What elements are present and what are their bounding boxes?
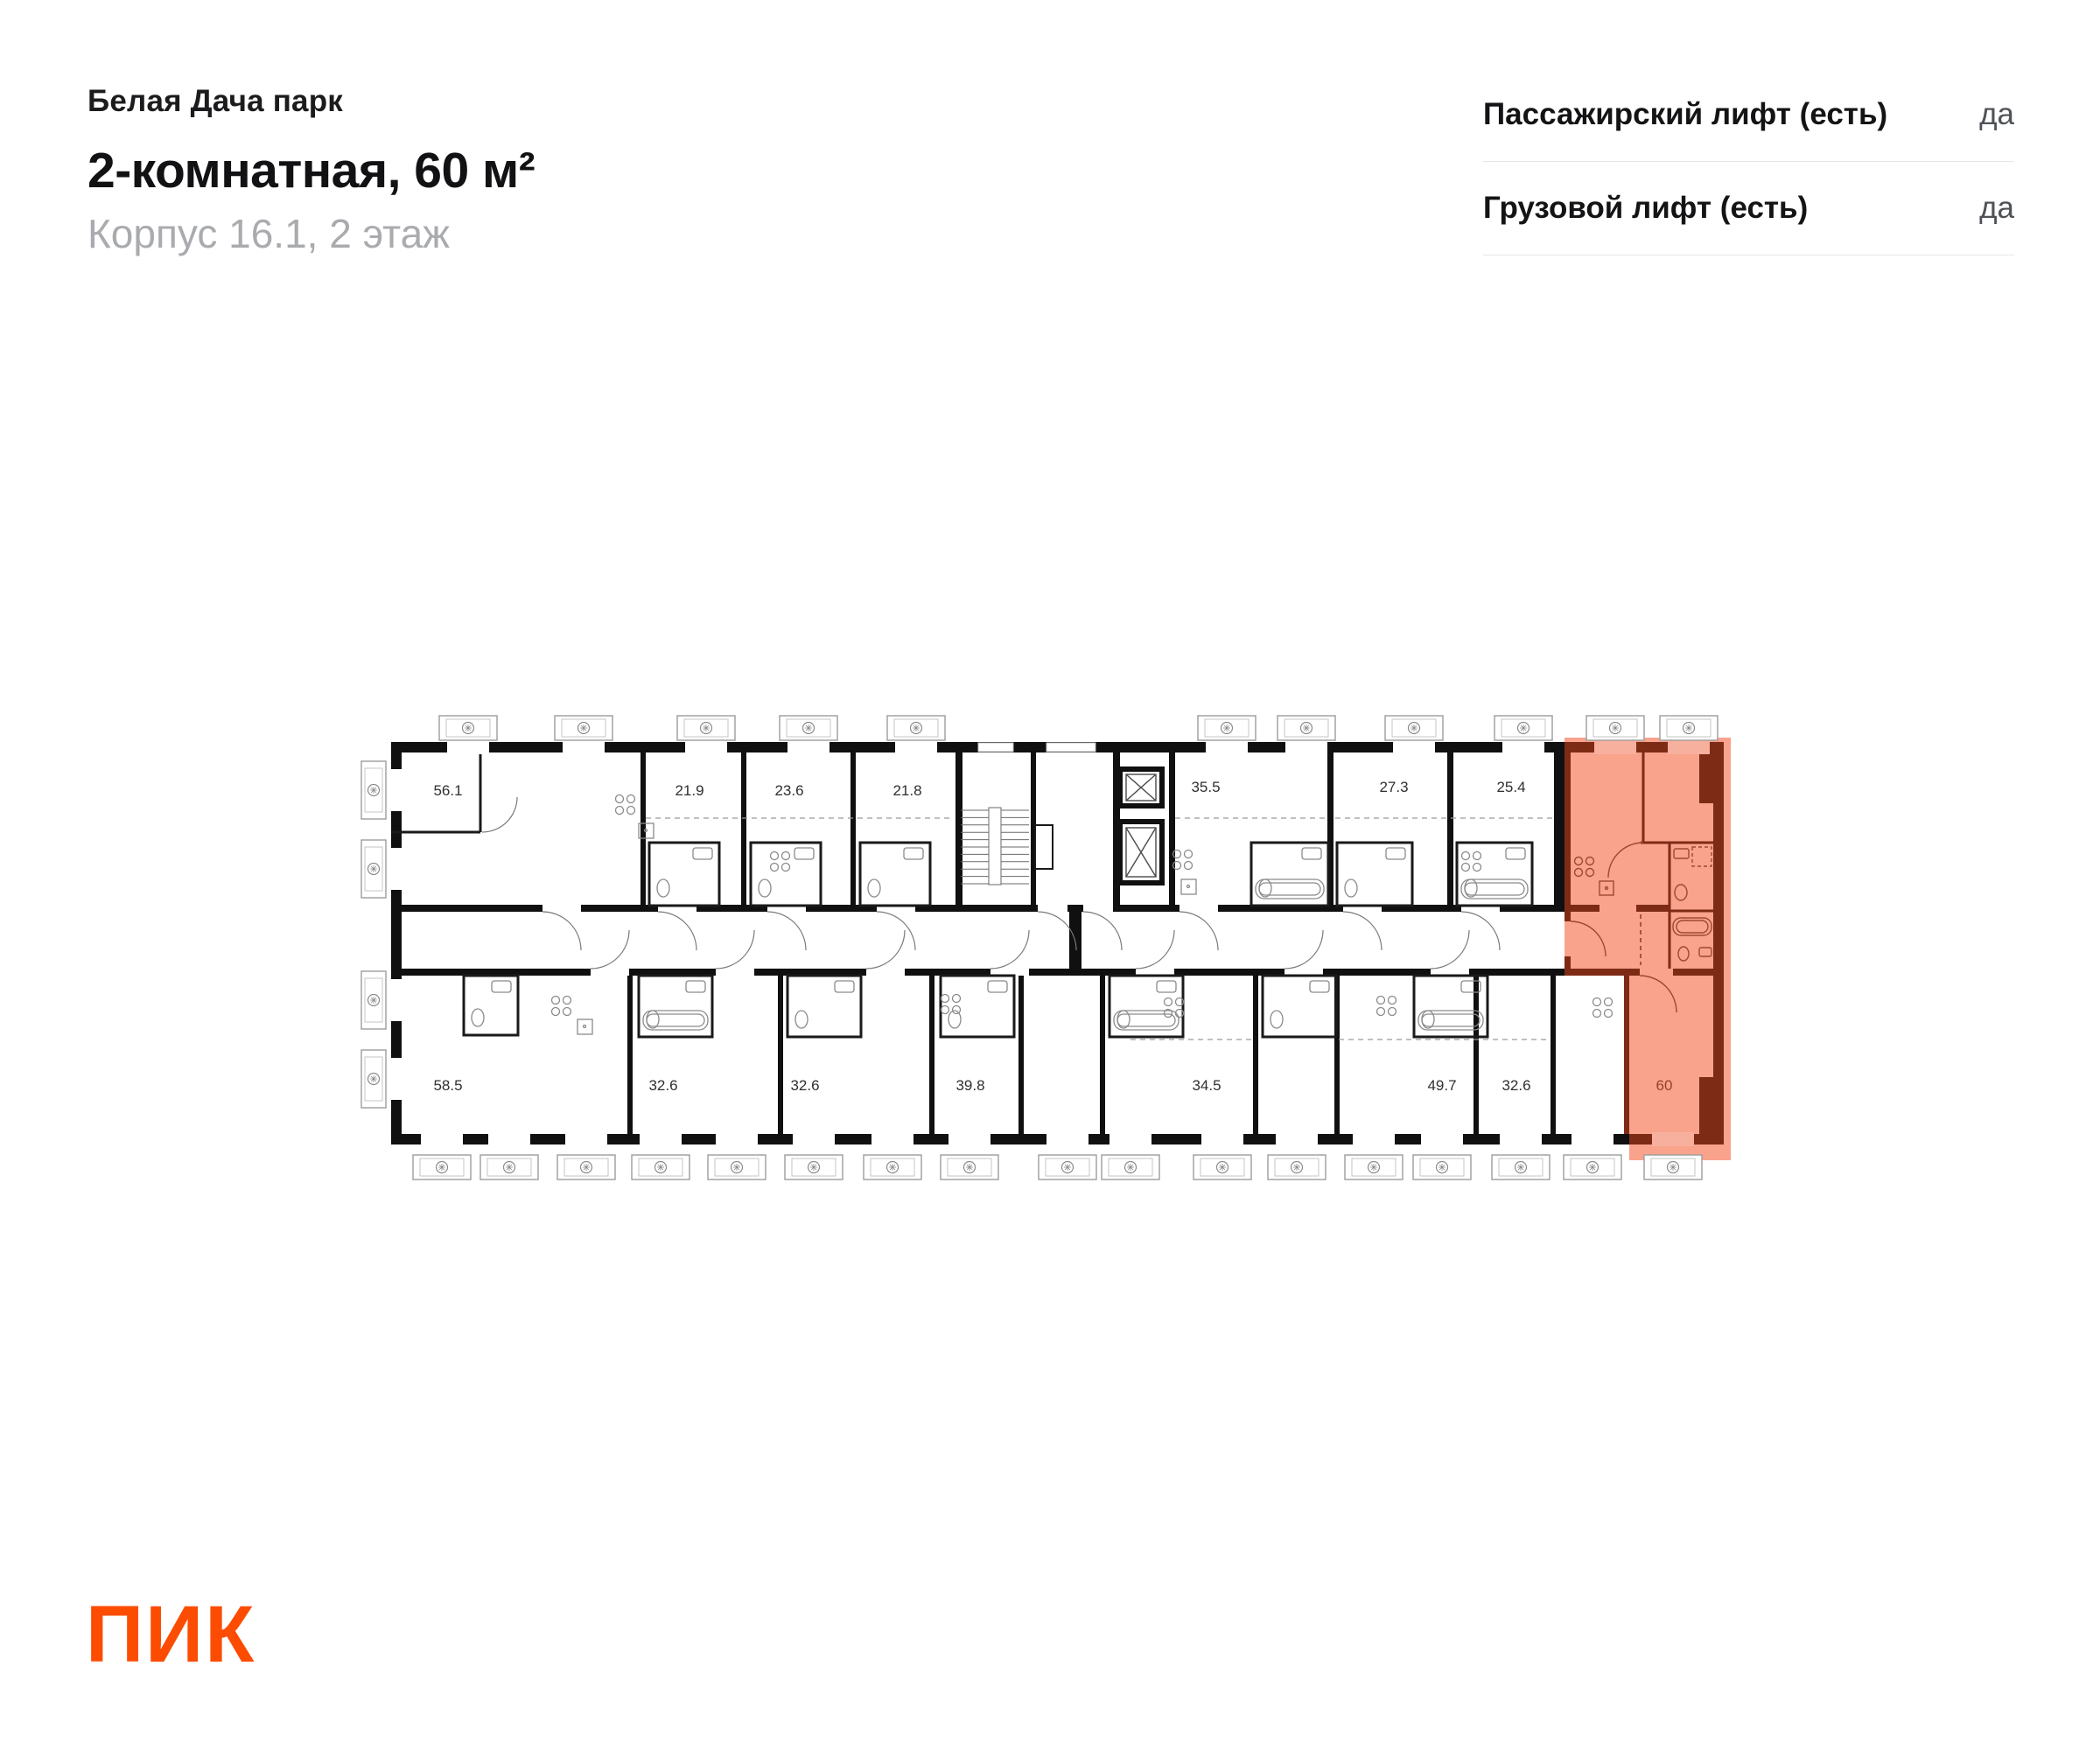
unit-area-label: 58.5 [433, 1077, 462, 1094]
unit-area-label: 49.7 [1427, 1077, 1456, 1094]
pik-logo[interactable]: ПИК [86, 1594, 255, 1675]
unit-area-label: 32.6 [790, 1077, 819, 1094]
staircase [961, 808, 1029, 885]
elevator-shafts [1120, 769, 1162, 883]
floorplan-svg: 56.121.923.621.835.527.325.458.532.632.6… [354, 711, 1763, 1184]
unit-area-label: 32.6 [1501, 1077, 1530, 1094]
page-subtitle: Корпус 16.1, 2 этаж [87, 210, 535, 257]
unit-area-label: 56.1 [433, 782, 462, 799]
unit-area-label: 27.3 [1379, 779, 1408, 795]
unit-area-label: 25.4 [1496, 779, 1525, 795]
unit-area-label: 21.8 [892, 782, 921, 799]
unit-area-label: 32.6 [648, 1077, 677, 1094]
unit-area-label: 35.5 [1191, 779, 1220, 795]
page-title: 2-комнатная, 60 м² [87, 142, 535, 199]
project-name: Белая Дача парк [87, 84, 535, 119]
lift-info: Пассажирский лифт (есть) да Грузовой лиф… [1483, 68, 2014, 255]
lift-row-passenger: Пассажирский лифт (есть) да [1483, 68, 2014, 162]
lift-row-value: да [1979, 191, 2014, 226]
unit-area-label-highlighted: 60 [1656, 1077, 1673, 1094]
lift-row-label: Грузовой лифт (есть) [1483, 191, 1808, 226]
unit-area-label: 39.8 [955, 1077, 984, 1094]
lift-row-cargo: Грузовой лифт (есть) да [1483, 162, 2014, 255]
door-openings [542, 743, 1500, 976]
unit-area-label: 21.9 [675, 782, 703, 799]
floorplan: 56.121.923.621.835.527.325.458.532.632.6… [354, 711, 1763, 1188]
unit-area-label: 23.6 [774, 782, 803, 799]
header: Белая Дача парк 2-комнатная, 60 м² Корпу… [87, 84, 535, 257]
lift-row-label: Пассажирский лифт (есть) [1483, 97, 1887, 132]
highlighted-unit[interactable] [1564, 738, 1731, 1160]
unit-area-label: 34.5 [1192, 1077, 1221, 1094]
lift-row-value: да [1979, 97, 2014, 132]
